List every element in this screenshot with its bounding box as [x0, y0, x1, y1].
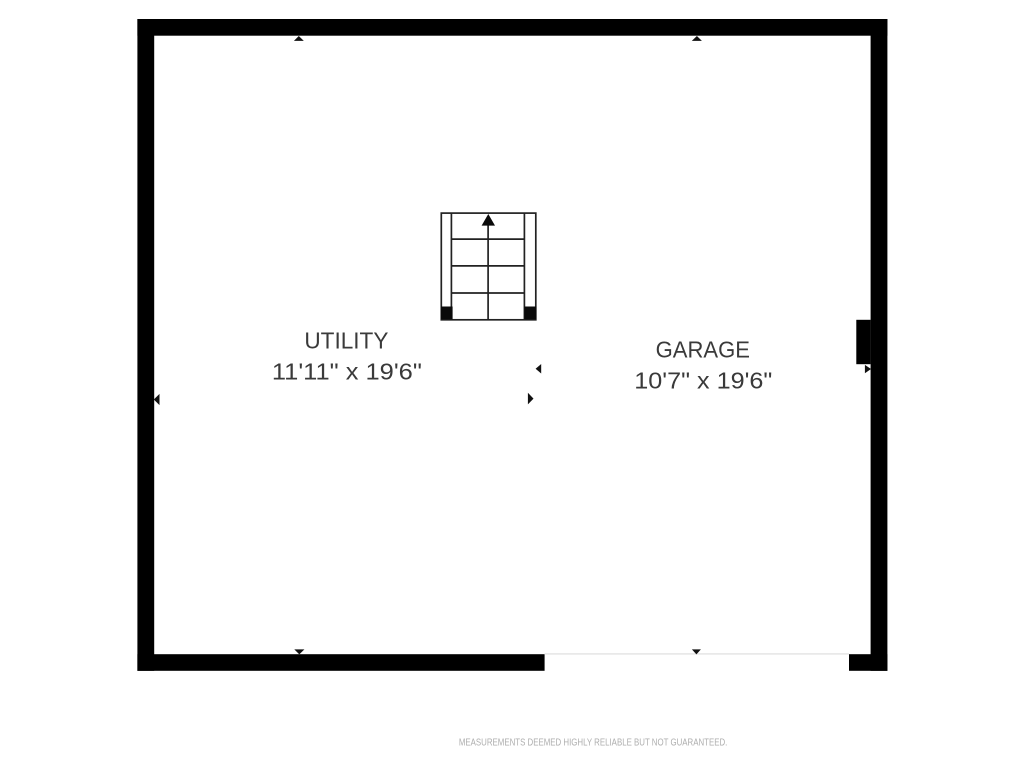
svg-text:11'11" x 19'6": 11'11" x 19'6" — [272, 359, 422, 385]
svg-text:MEASUREMENTS DEEMED HIGHLY REL: MEASUREMENTS DEEMED HIGHLY RELIABLE BUT … — [459, 738, 728, 749]
svg-text:GARAGE: GARAGE — [656, 337, 750, 363]
svg-text:10'7" x 19'6": 10'7" x 19'6" — [634, 368, 772, 394]
svg-text:UTILITY: UTILITY — [304, 327, 388, 353]
